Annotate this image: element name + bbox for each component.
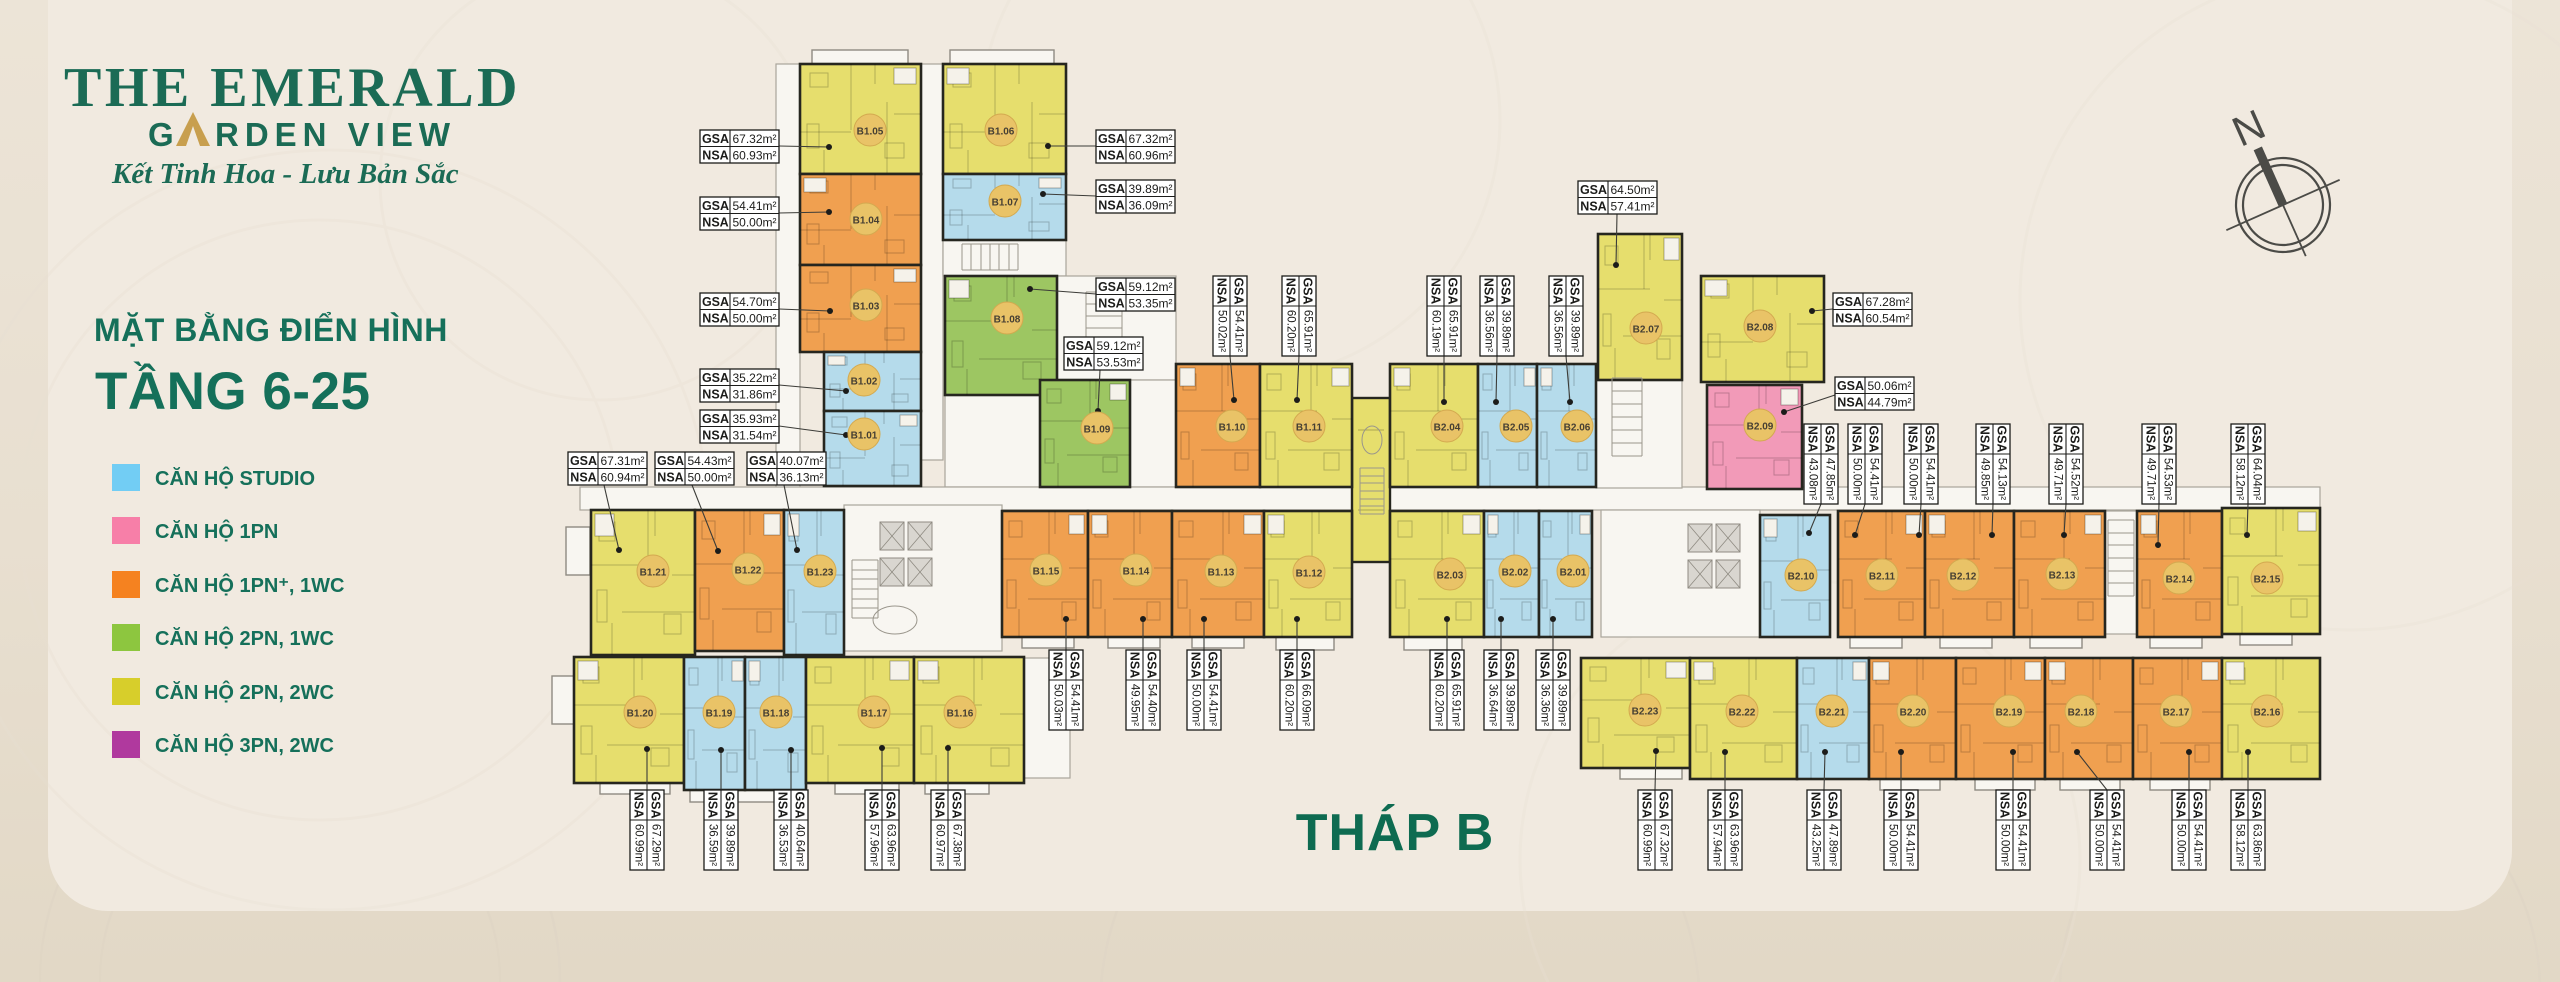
svg-text:THE EMERALD: THE EMERALD [64,57,521,119]
svg-text:GSA: GSA [2068,425,2082,452]
svg-text:GSA: GSA [1923,425,1937,452]
svg-text:B2.09: B2.09 [1747,422,1774,433]
svg-text:60.99m²: 60.99m² [1641,824,1653,866]
svg-text:B2.12: B2.12 [1950,572,1977,583]
svg-text:54.43m²: 54.43m² [687,454,731,468]
svg-text:B2.13: B2.13 [2049,571,2076,582]
svg-text:NSA: NSA [632,792,646,818]
svg-text:B2.19: B2.19 [1996,708,2023,719]
svg-text:B1.21: B1.21 [640,568,667,579]
svg-text:50.00m²: 50.00m² [1851,458,1863,500]
svg-text:GSA: GSA [1867,425,1881,452]
svg-text:GSA: GSA [1206,651,1220,678]
svg-text:50.06m²: 50.06m² [1867,379,1911,393]
svg-text:NSA: NSA [749,471,775,485]
svg-text:60.20m²: 60.20m² [1283,684,1295,726]
svg-text:GSA: GSA [1098,280,1125,294]
svg-text:GSA: GSA [1837,379,1864,393]
svg-text:GSA: GSA [723,791,737,818]
svg-text:GSA: GSA [1823,425,1837,452]
svg-text:54.41m²: 54.41m² [1924,458,1936,500]
svg-text:NSA: NSA [1837,396,1863,410]
svg-text:54.70m²: 54.70m² [732,295,776,309]
svg-text:NSA: NSA [1429,278,1443,304]
svg-text:NSA: NSA [702,149,728,163]
svg-text:GSA: GSA [1555,651,1569,678]
svg-text:NSA: NSA [1282,652,1296,678]
svg-text:NSA: NSA [933,792,947,818]
svg-text:GSA: GSA [1499,277,1513,304]
svg-text:NSA: NSA [1128,652,1142,678]
svg-text:B2.06: B2.06 [1564,423,1591,434]
svg-text:58.12m²: 58.12m² [2234,824,2246,866]
svg-text:66.09m²: 66.09m² [1300,684,1312,726]
svg-text:CĂN HỘ 1PN⁺, 1WC: CĂN HỘ 1PN⁺, 1WC [155,573,344,597]
svg-text:NSA: NSA [2233,426,2247,452]
svg-text:54.52m²: 54.52m² [2069,458,2081,500]
svg-text:39.89m²: 39.89m² [1556,684,1568,726]
svg-text:B2.03: B2.03 [1437,571,1464,582]
svg-text:36.56m²: 36.56m² [1483,310,1495,352]
svg-text:GSA: GSA [702,199,729,213]
svg-text:67.29m²: 67.29m² [650,824,662,866]
svg-text:NSA: NSA [1998,792,2012,818]
svg-text:50.00m²: 50.00m² [687,471,731,485]
svg-text:54.41m²: 54.41m² [1069,684,1081,726]
svg-text:GSA: GSA [1098,182,1125,196]
svg-text:B1.10: B1.10 [1219,423,1246,434]
svg-text:50.00m²: 50.00m² [732,312,776,326]
svg-text:NSA: NSA [2233,792,2247,818]
svg-text:50.00m²: 50.00m² [1999,824,2011,866]
svg-text:54.13m²: 54.13m² [1996,458,2008,500]
svg-text:50.00m²: 50.00m² [1907,458,1919,500]
svg-text:B1.13: B1.13 [1208,568,1235,579]
svg-text:60.97m²: 60.97m² [934,824,946,866]
svg-text:B2.01: B2.01 [1560,568,1587,579]
svg-text:NSA: NSA [1098,199,1124,213]
svg-text:43.25m²: 43.25m² [1810,824,1822,866]
svg-text:B1.01: B1.01 [851,431,878,442]
svg-text:43.08m²: 43.08m² [1807,458,1819,500]
svg-text:NSA: NSA [1850,426,1864,452]
svg-text:B1.14: B1.14 [1123,567,1150,578]
svg-text:36.59m²: 36.59m² [707,824,719,866]
svg-text:B1.07: B1.07 [992,198,1019,209]
svg-text:B1.05: B1.05 [857,127,884,138]
svg-text:NSA: NSA [1551,278,1565,304]
svg-text:B1.22: B1.22 [735,566,762,577]
svg-text:NSA: NSA [1051,652,1065,678]
svg-text:31.54m²: 31.54m² [732,429,776,443]
svg-text:GSA: GSA [2161,425,2175,452]
svg-text:40.07m²: 40.07m² [779,454,823,468]
svg-text:NSA: NSA [1538,652,1552,678]
svg-text:NSA: NSA [1806,426,1820,452]
svg-text:60.99m²: 60.99m² [633,824,645,866]
svg-text:NSA: NSA [706,792,720,818]
svg-text:B1.15: B1.15 [1033,567,1060,578]
svg-text:NSA: NSA [2051,426,2065,452]
svg-text:49.71m²: 49.71m² [2145,458,2157,500]
svg-text:58.12m²: 58.12m² [2234,458,2246,500]
svg-text:GSA: GSA [950,791,964,818]
svg-text:NSA: NSA [1432,652,1446,678]
svg-text:G: G [148,116,180,153]
svg-text:GSA: GSA [1903,791,1917,818]
svg-text:54.41m²: 54.41m² [2192,824,2204,866]
svg-text:GSA: GSA [1301,277,1315,304]
svg-text:67.32m²: 67.32m² [1658,824,1670,866]
svg-text:NSA: NSA [776,792,790,818]
svg-text:GSA: GSA [749,454,776,468]
svg-text:NSA: NSA [1098,149,1124,163]
svg-text:40.64m²: 40.64m² [794,824,806,866]
svg-text:50.00m²: 50.00m² [2093,824,2105,866]
svg-text:50.00m²: 50.00m² [1887,824,1899,866]
svg-text:54.41m²: 54.41m² [732,199,776,213]
svg-text:B1.02: B1.02 [851,377,878,388]
svg-text:B2.05: B2.05 [1503,423,1530,434]
svg-text:49.85m²: 49.85m² [1979,458,1991,500]
svg-text:54.41m²: 54.41m² [1207,684,1219,726]
svg-text:GSA: GSA [1232,277,1246,304]
svg-text:GSA: GSA [570,454,597,468]
svg-text:GSA: GSA [2191,791,2205,818]
svg-text:NSA: NSA [1482,278,1496,304]
svg-text:B2.21: B2.21 [1819,708,1846,719]
svg-text:NSA: NSA [1640,792,1654,818]
svg-text:NSA: NSA [1835,312,1861,326]
svg-text:54.53m²: 54.53m² [2162,458,2174,500]
svg-text:36.36m²: 36.36m² [1539,684,1551,726]
svg-text:B1.09: B1.09 [1084,425,1111,436]
svg-text:TẦNG 6-25: TẦNG 6-25 [95,361,370,421]
svg-text:GSA: GSA [2250,425,2264,452]
svg-text:GSA: GSA [2015,791,2029,818]
svg-text:35.22m²: 35.22m² [732,371,776,385]
svg-text:NSA: NSA [702,429,728,443]
svg-text:B1.04: B1.04 [853,216,880,227]
svg-text:GSA: GSA [1503,651,1517,678]
svg-text:GSA: GSA [2250,791,2264,818]
svg-text:NSA: NSA [1710,792,1724,818]
svg-text:60.20m²: 60.20m² [1285,310,1297,352]
svg-text:67.28m²: 67.28m² [1865,295,1909,309]
svg-text:B1.03: B1.03 [853,302,880,313]
svg-text:57.96m²: 57.96m² [868,824,880,866]
svg-text:GSA: GSA [1098,132,1125,146]
svg-text:CĂN HỘ STUDIO: CĂN HỘ STUDIO [155,466,315,490]
svg-text:CĂN HỘ 1PN: CĂN HỘ 1PN [155,519,278,543]
svg-text:59.12m²: 59.12m² [1128,280,1172,294]
svg-text:53.35m²: 53.35m² [1128,297,1172,311]
svg-text:B2.11: B2.11 [1869,572,1896,583]
svg-text:NSA: NSA [702,216,728,230]
svg-text:44.79m²: 44.79m² [1867,396,1911,410]
svg-text:65.91m²: 65.91m² [1450,684,1462,726]
svg-text:GSA: GSA [702,412,729,426]
svg-text:GSA: GSA [1995,425,2009,452]
svg-text:CĂN HỘ 2PN, 1WC: CĂN HỘ 2PN, 1WC [155,626,334,650]
svg-text:NSA: NSA [1215,278,1229,304]
svg-text:67.32m²: 67.32m² [1128,132,1172,146]
svg-text:NSA: NSA [657,471,683,485]
svg-text:50.03m²: 50.03m² [1052,684,1064,726]
svg-text:GSA: GSA [1145,651,1159,678]
svg-text:NSA: NSA [702,388,728,402]
svg-text:GSA: GSA [1568,277,1582,304]
svg-text:B2.15: B2.15 [2254,575,2281,586]
svg-text:MẶT BẰNG ĐIỂN HÌNH: MẶT BẰNG ĐIỂN HÌNH [94,312,448,348]
svg-text:67.32m²: 67.32m² [732,132,776,146]
svg-text:NSA: NSA [1066,356,1092,370]
svg-text:GSA: GSA [702,295,729,309]
svg-text:B1.17: B1.17 [861,709,888,720]
svg-text:CĂN HỘ 3PN, 2WC: CĂN HỘ 3PN, 2WC [155,733,334,757]
svg-text:47.89m²: 47.89m² [1827,824,1839,866]
svg-text:B2.20: B2.20 [1900,708,1927,719]
svg-text:59.12m²: 59.12m² [1096,339,1140,353]
svg-text:GSA: GSA [1657,791,1671,818]
svg-text:67.31m²: 67.31m² [600,454,644,468]
svg-text:GSA: GSA [649,791,663,818]
svg-text:B2.04: B2.04 [1434,423,1461,434]
svg-text:GSA: GSA [702,371,729,385]
svg-text:50.00m²: 50.00m² [2175,824,2187,866]
svg-text:B1.23: B1.23 [807,568,834,579]
svg-text:B1.12: B1.12 [1296,569,1323,580]
svg-text:49.95m²: 49.95m² [1129,684,1141,726]
svg-text:31.86m²: 31.86m² [732,388,776,402]
svg-text:GSA: GSA [1066,339,1093,353]
svg-text:67.38m²: 67.38m² [951,824,963,866]
svg-text:GSA: GSA [1835,295,1862,309]
svg-text:GSA: GSA [1826,791,1840,818]
svg-text:NSA: NSA [1886,792,1900,818]
svg-text:54.40m²: 54.40m² [1146,684,1158,726]
svg-text:NSA: NSA [570,471,596,485]
svg-text:B1.16: B1.16 [947,709,974,720]
svg-text:NSA: NSA [1809,792,1823,818]
svg-text:39.89m²: 39.89m² [1569,310,1581,352]
svg-text:GSA: GSA [657,454,684,468]
svg-text:GSA: GSA [793,791,807,818]
svg-text:63.96m²: 63.96m² [1728,824,1740,866]
svg-text:B2.22: B2.22 [1729,708,1756,719]
svg-text:CĂN HỘ 2PN, 2WC: CĂN HỘ 2PN, 2WC [155,680,334,704]
svg-text:NSA: NSA [2174,792,2188,818]
svg-text:B1.06: B1.06 [988,127,1015,138]
svg-text:B2.10: B2.10 [1788,572,1815,583]
svg-text:63.86m²: 63.86m² [2251,824,2263,866]
svg-text:64.50m²: 64.50m² [1610,183,1654,197]
svg-text:B2.07: B2.07 [1633,325,1660,336]
svg-text:60.20m²: 60.20m² [1433,684,1445,726]
svg-text:NSA: NSA [1486,652,1500,678]
svg-text:NSA: NSA [1284,278,1298,304]
svg-text:NSA: NSA [1906,426,1920,452]
svg-text:Kết Tinh Hoa - Lưu Bản Sắc: Kết Tinh Hoa - Lưu Bản Sắc [111,158,459,190]
svg-text:60.93m²: 60.93m² [732,149,776,163]
svg-text:GSA: GSA [1068,651,1082,678]
svg-text:B1.20: B1.20 [627,709,654,720]
svg-text:39.89m²: 39.89m² [724,824,736,866]
svg-text:47.85m²: 47.85m² [1824,458,1836,500]
svg-text:NSA: NSA [2144,426,2158,452]
svg-text:36.56m²: 36.56m² [1552,310,1564,352]
svg-text:B1.18: B1.18 [763,709,790,720]
svg-text:B2.08: B2.08 [1747,323,1774,334]
svg-text:39.89m²: 39.89m² [1128,182,1172,196]
svg-text:60.54m²: 60.54m² [1865,312,1909,326]
svg-text:B1.19: B1.19 [706,709,733,720]
svg-text:57.94m²: 57.94m² [1711,824,1723,866]
svg-text:NSA: NSA [1978,426,1992,452]
svg-text:B2.14: B2.14 [2166,575,2193,586]
svg-text:60.96m²: 60.96m² [1128,149,1172,163]
svg-text:B2.17: B2.17 [2163,708,2190,719]
svg-text:B2.02: B2.02 [1502,568,1529,579]
svg-text:39.89m²: 39.89m² [1500,310,1512,352]
svg-text:THÁP B: THÁP B [1296,804,1495,862]
svg-text:63.96m²: 63.96m² [885,824,897,866]
svg-text:36.09m²: 36.09m² [1128,199,1172,213]
svg-text:36.53m²: 36.53m² [777,824,789,866]
svg-text:64.04m²: 64.04m² [2251,458,2263,500]
svg-text:GSA: GSA [1446,277,1460,304]
svg-text:35.93m²: 35.93m² [732,412,776,426]
svg-text:60.94m²: 60.94m² [600,471,644,485]
svg-text:53.53m²: 53.53m² [1096,356,1140,370]
svg-text:50.00m²: 50.00m² [732,216,776,230]
svg-text:GSA: GSA [1299,651,1313,678]
svg-text:NSA: NSA [1189,652,1203,678]
svg-text:GSA: GSA [2109,791,2123,818]
svg-text:49.71m²: 49.71m² [2052,458,2064,500]
svg-text:54.41m²: 54.41m² [2016,824,2028,866]
svg-text:B2.16: B2.16 [2254,708,2281,719]
svg-text:GSA: GSA [1580,183,1607,197]
svg-text:65.91m²: 65.91m² [1447,310,1459,352]
svg-text:57.41m²: 57.41m² [1610,200,1654,214]
svg-text:B2.23: B2.23 [1632,707,1659,718]
svg-text:B1.11: B1.11 [1296,423,1323,434]
svg-text:B2.18: B2.18 [2068,708,2095,719]
svg-text:54.41m²: 54.41m² [2110,824,2122,866]
svg-text:50.00m²: 50.00m² [1190,684,1202,726]
svg-text:GSA: GSA [1449,651,1463,678]
svg-text:GSA: GSA [884,791,898,818]
svg-text:54.41m²: 54.41m² [1233,310,1245,352]
svg-text:NSA: NSA [1580,200,1606,214]
svg-text:RDEN VIEW: RDEN VIEW [215,116,456,153]
svg-text:54.41m²: 54.41m² [1904,824,1916,866]
svg-text:39.89m²: 39.89m² [1504,684,1516,726]
svg-text:NSA: NSA [867,792,881,818]
svg-text:65.91m²: 65.91m² [1302,310,1314,352]
svg-text:B1.08: B1.08 [994,315,1021,326]
svg-text:50.02m²: 50.02m² [1216,310,1228,352]
svg-text:GSA: GSA [1727,791,1741,818]
svg-text:60.19m²: 60.19m² [1430,310,1442,352]
svg-text:NSA: NSA [702,312,728,326]
svg-text:GSA: GSA [702,132,729,146]
svg-text:36.13m²: 36.13m² [779,471,823,485]
svg-text:54.41m²: 54.41m² [1868,458,1880,500]
svg-text:NSA: NSA [1098,297,1124,311]
svg-text:NSA: NSA [2092,792,2106,818]
svg-text:36.64m²: 36.64m² [1487,684,1499,726]
